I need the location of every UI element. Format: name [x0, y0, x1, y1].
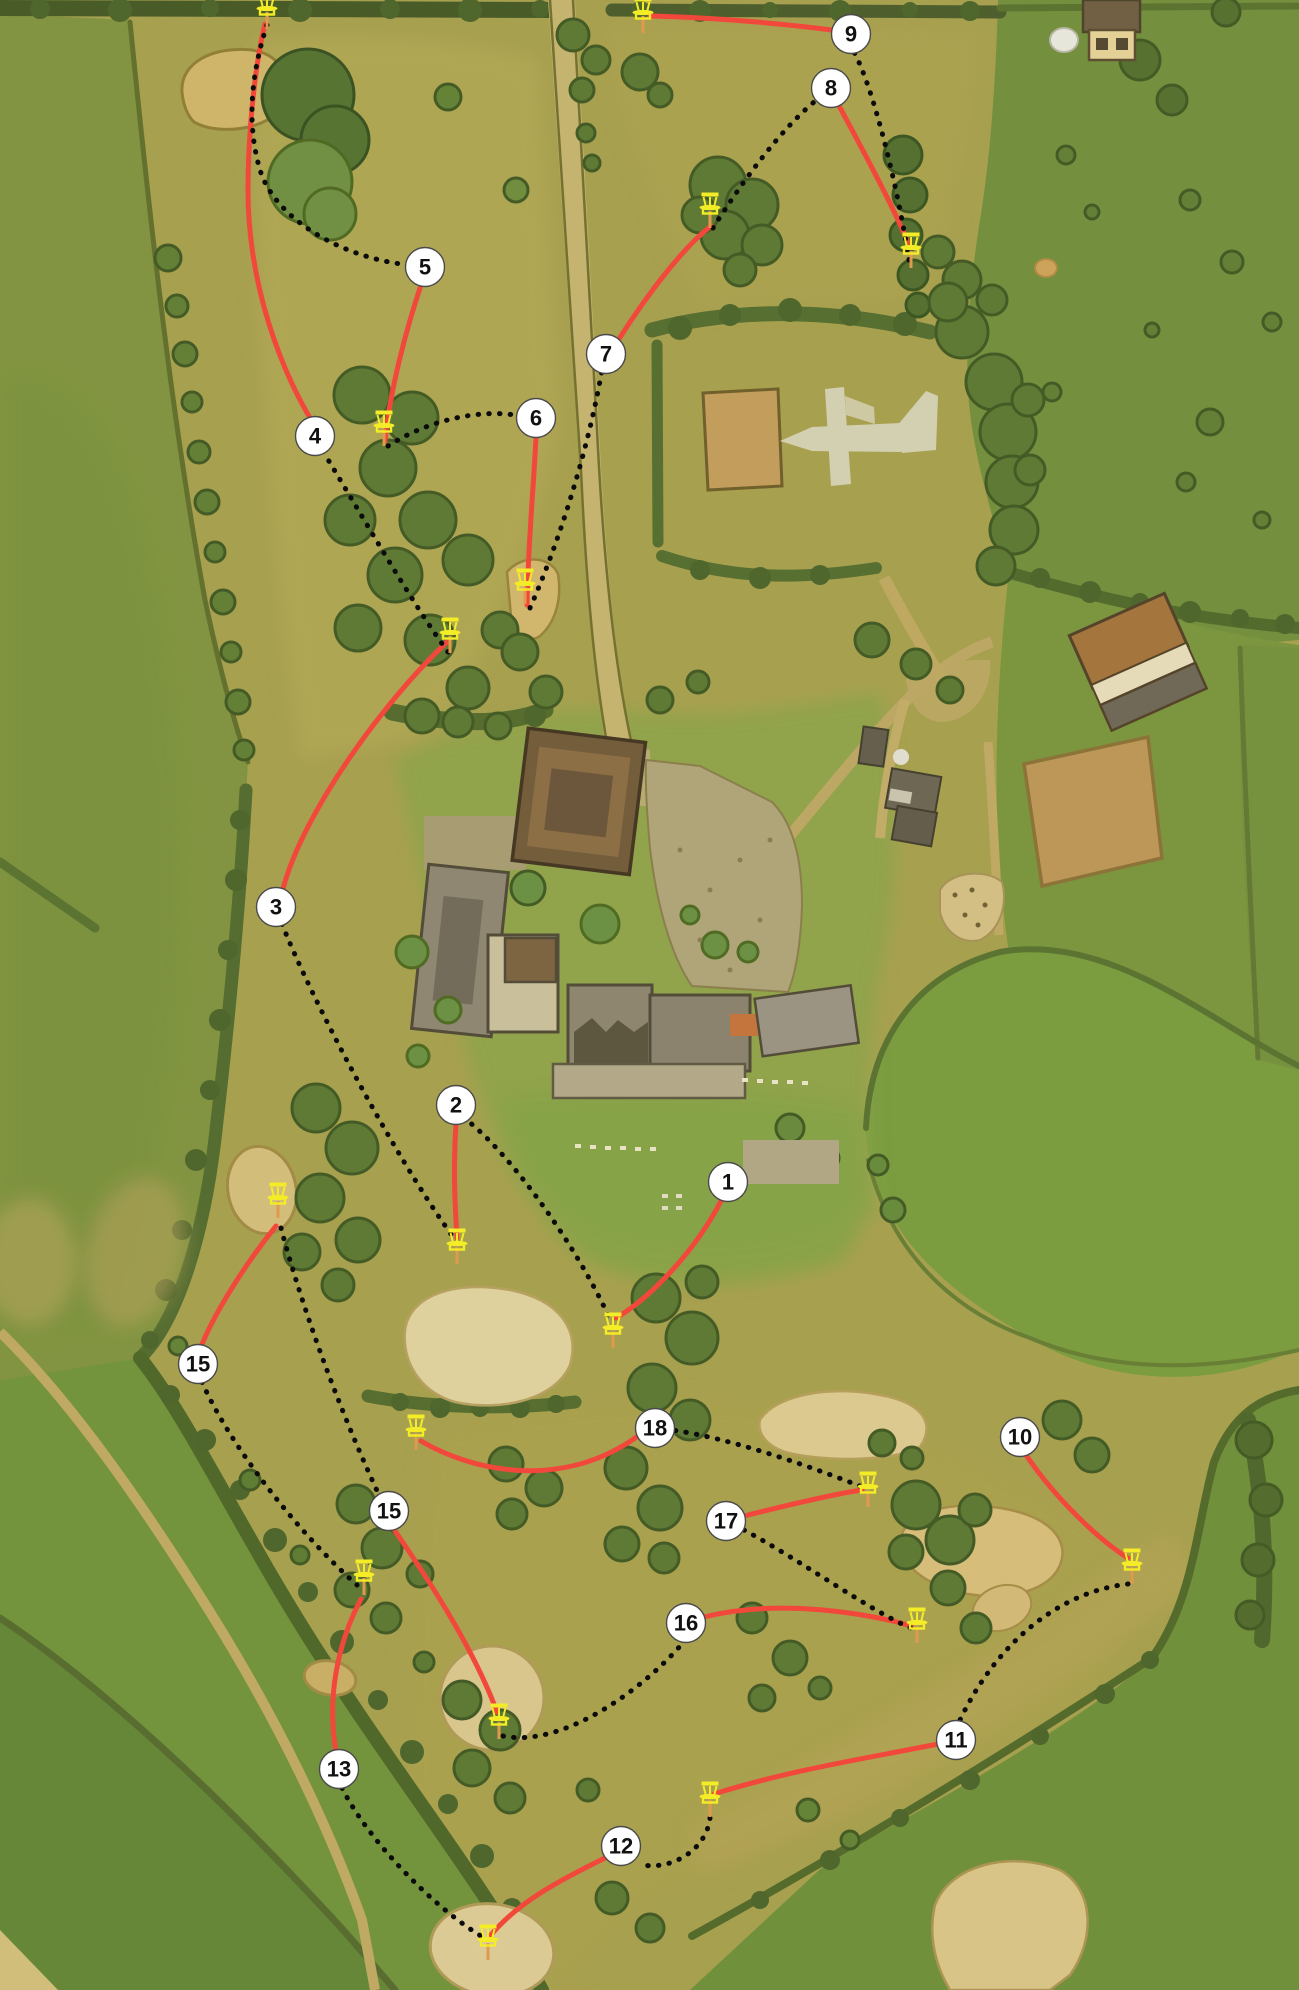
svg-text:4: 4: [309, 424, 322, 449]
svg-text:10: 10: [1008, 1425, 1032, 1450]
svg-text:6: 6: [530, 406, 542, 431]
svg-text:9: 9: [845, 22, 857, 47]
svg-text:1: 1: [722, 1170, 734, 1195]
svg-text:18: 18: [643, 1416, 667, 1441]
svg-text:11: 11: [944, 1728, 967, 1753]
svg-text:5: 5: [419, 255, 431, 280]
svg-text:17: 17: [714, 1509, 738, 1534]
svg-text:12: 12: [609, 1834, 633, 1859]
svg-text:15: 15: [377, 1499, 401, 1524]
svg-text:3: 3: [270, 895, 282, 920]
svg-text:8: 8: [825, 76, 837, 101]
svg-text:2: 2: [450, 1093, 462, 1118]
svg-text:16: 16: [674, 1611, 698, 1636]
svg-text:7: 7: [600, 342, 612, 367]
svg-text:15: 15: [186, 1352, 210, 1377]
svg-text:13: 13: [327, 1757, 351, 1782]
